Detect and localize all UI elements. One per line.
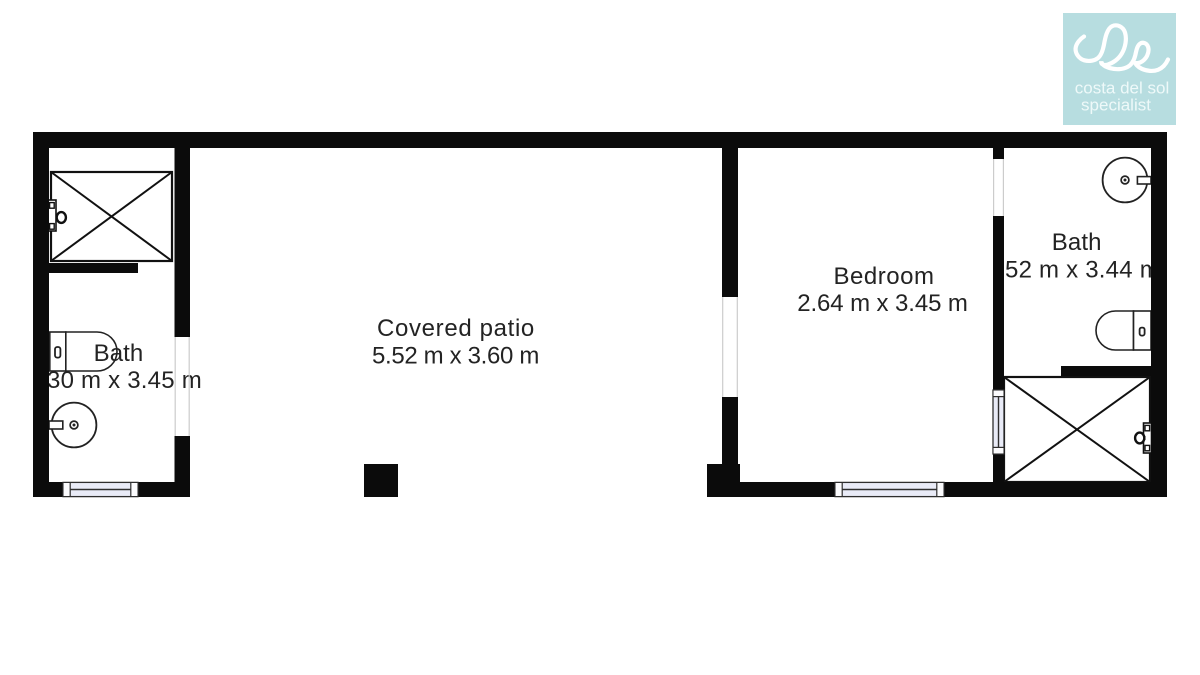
svg-text:Bath: Bath	[1052, 229, 1102, 256]
svg-text:52 m x 3.44 m: 52 m x 3.44 m	[1005, 257, 1160, 284]
svg-text:Bedroom: Bedroom	[834, 263, 935, 290]
svg-text:30 m x 3.45 m: 30 m x 3.45 m	[47, 367, 202, 394]
svg-text:5.52 m x 3.60 m: 5.52 m x 3.60 m	[372, 343, 539, 370]
svg-text:Covered patio: Covered patio	[377, 315, 535, 342]
svg-text:specialist: specialist	[1081, 96, 1151, 115]
svg-text:2.64 m x 3.45 m: 2.64 m x 3.45 m	[797, 290, 968, 317]
svg-text:Bath: Bath	[94, 340, 144, 367]
